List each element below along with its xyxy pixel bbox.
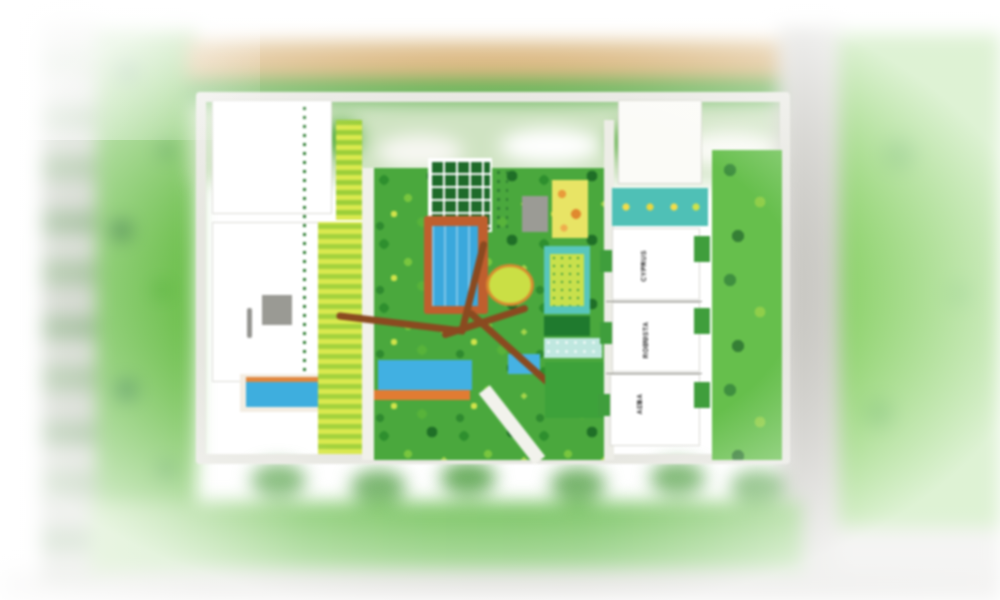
tower-alba [610, 374, 700, 446]
tower-label-alba: ALBA T6 [631, 378, 649, 430]
hedge-row-icon [300, 104, 310, 374]
tower-label-robusta: ROBUSTA T5 [637, 314, 655, 366]
leisure-pool [378, 360, 472, 390]
west-swimming-pool [246, 382, 318, 407]
tower-divider-line [606, 373, 702, 374]
west-building-core [262, 295, 292, 325]
east-courtyard-lawn [712, 150, 782, 460]
tower-cyprus [612, 228, 700, 300]
teal-terrace [544, 338, 602, 358]
south-court-green [544, 316, 590, 336]
hedge-row-icon [494, 168, 508, 234]
west-tower-label-illegible [247, 308, 252, 338]
masterplan-focus-area: CYPRUS T4 ROBUSTA T5 ALBA T6 [0, 0, 1000, 600]
tower-divider-line [606, 301, 702, 302]
sports-court [550, 254, 584, 306]
tower-garden-wing [694, 236, 710, 262]
tower-tier: T6 [637, 401, 643, 408]
tower-label-cyprus: CYPRUS T4 [635, 240, 653, 292]
west-building-upper [212, 100, 332, 214]
oval-event-lawn [486, 264, 534, 306]
tower-garden-wing [694, 382, 710, 408]
striped-lawn-west [318, 222, 362, 454]
northeast-building [618, 100, 702, 184]
play-area-yellow [552, 180, 588, 238]
tower-garden-wing [598, 394, 610, 416]
tower-tier: T5 [643, 337, 649, 344]
striped-lawn-northwest [336, 120, 362, 220]
tower-tier: T4 [641, 263, 647, 270]
tower-garden-wing [694, 308, 710, 334]
tower-robusta [612, 302, 700, 372]
leisure-pool-deck [374, 390, 470, 400]
tower-garden-wing [600, 250, 612, 272]
teal-amenity-pool-strip [612, 188, 708, 226]
garden-walkway-west [362, 168, 374, 460]
tower-garden-wing [600, 322, 612, 344]
utility-block [522, 196, 548, 232]
masterplan-screenshot: CYPRUS T4 ROBUSTA T5 ALBA T6 [0, 0, 1000, 600]
